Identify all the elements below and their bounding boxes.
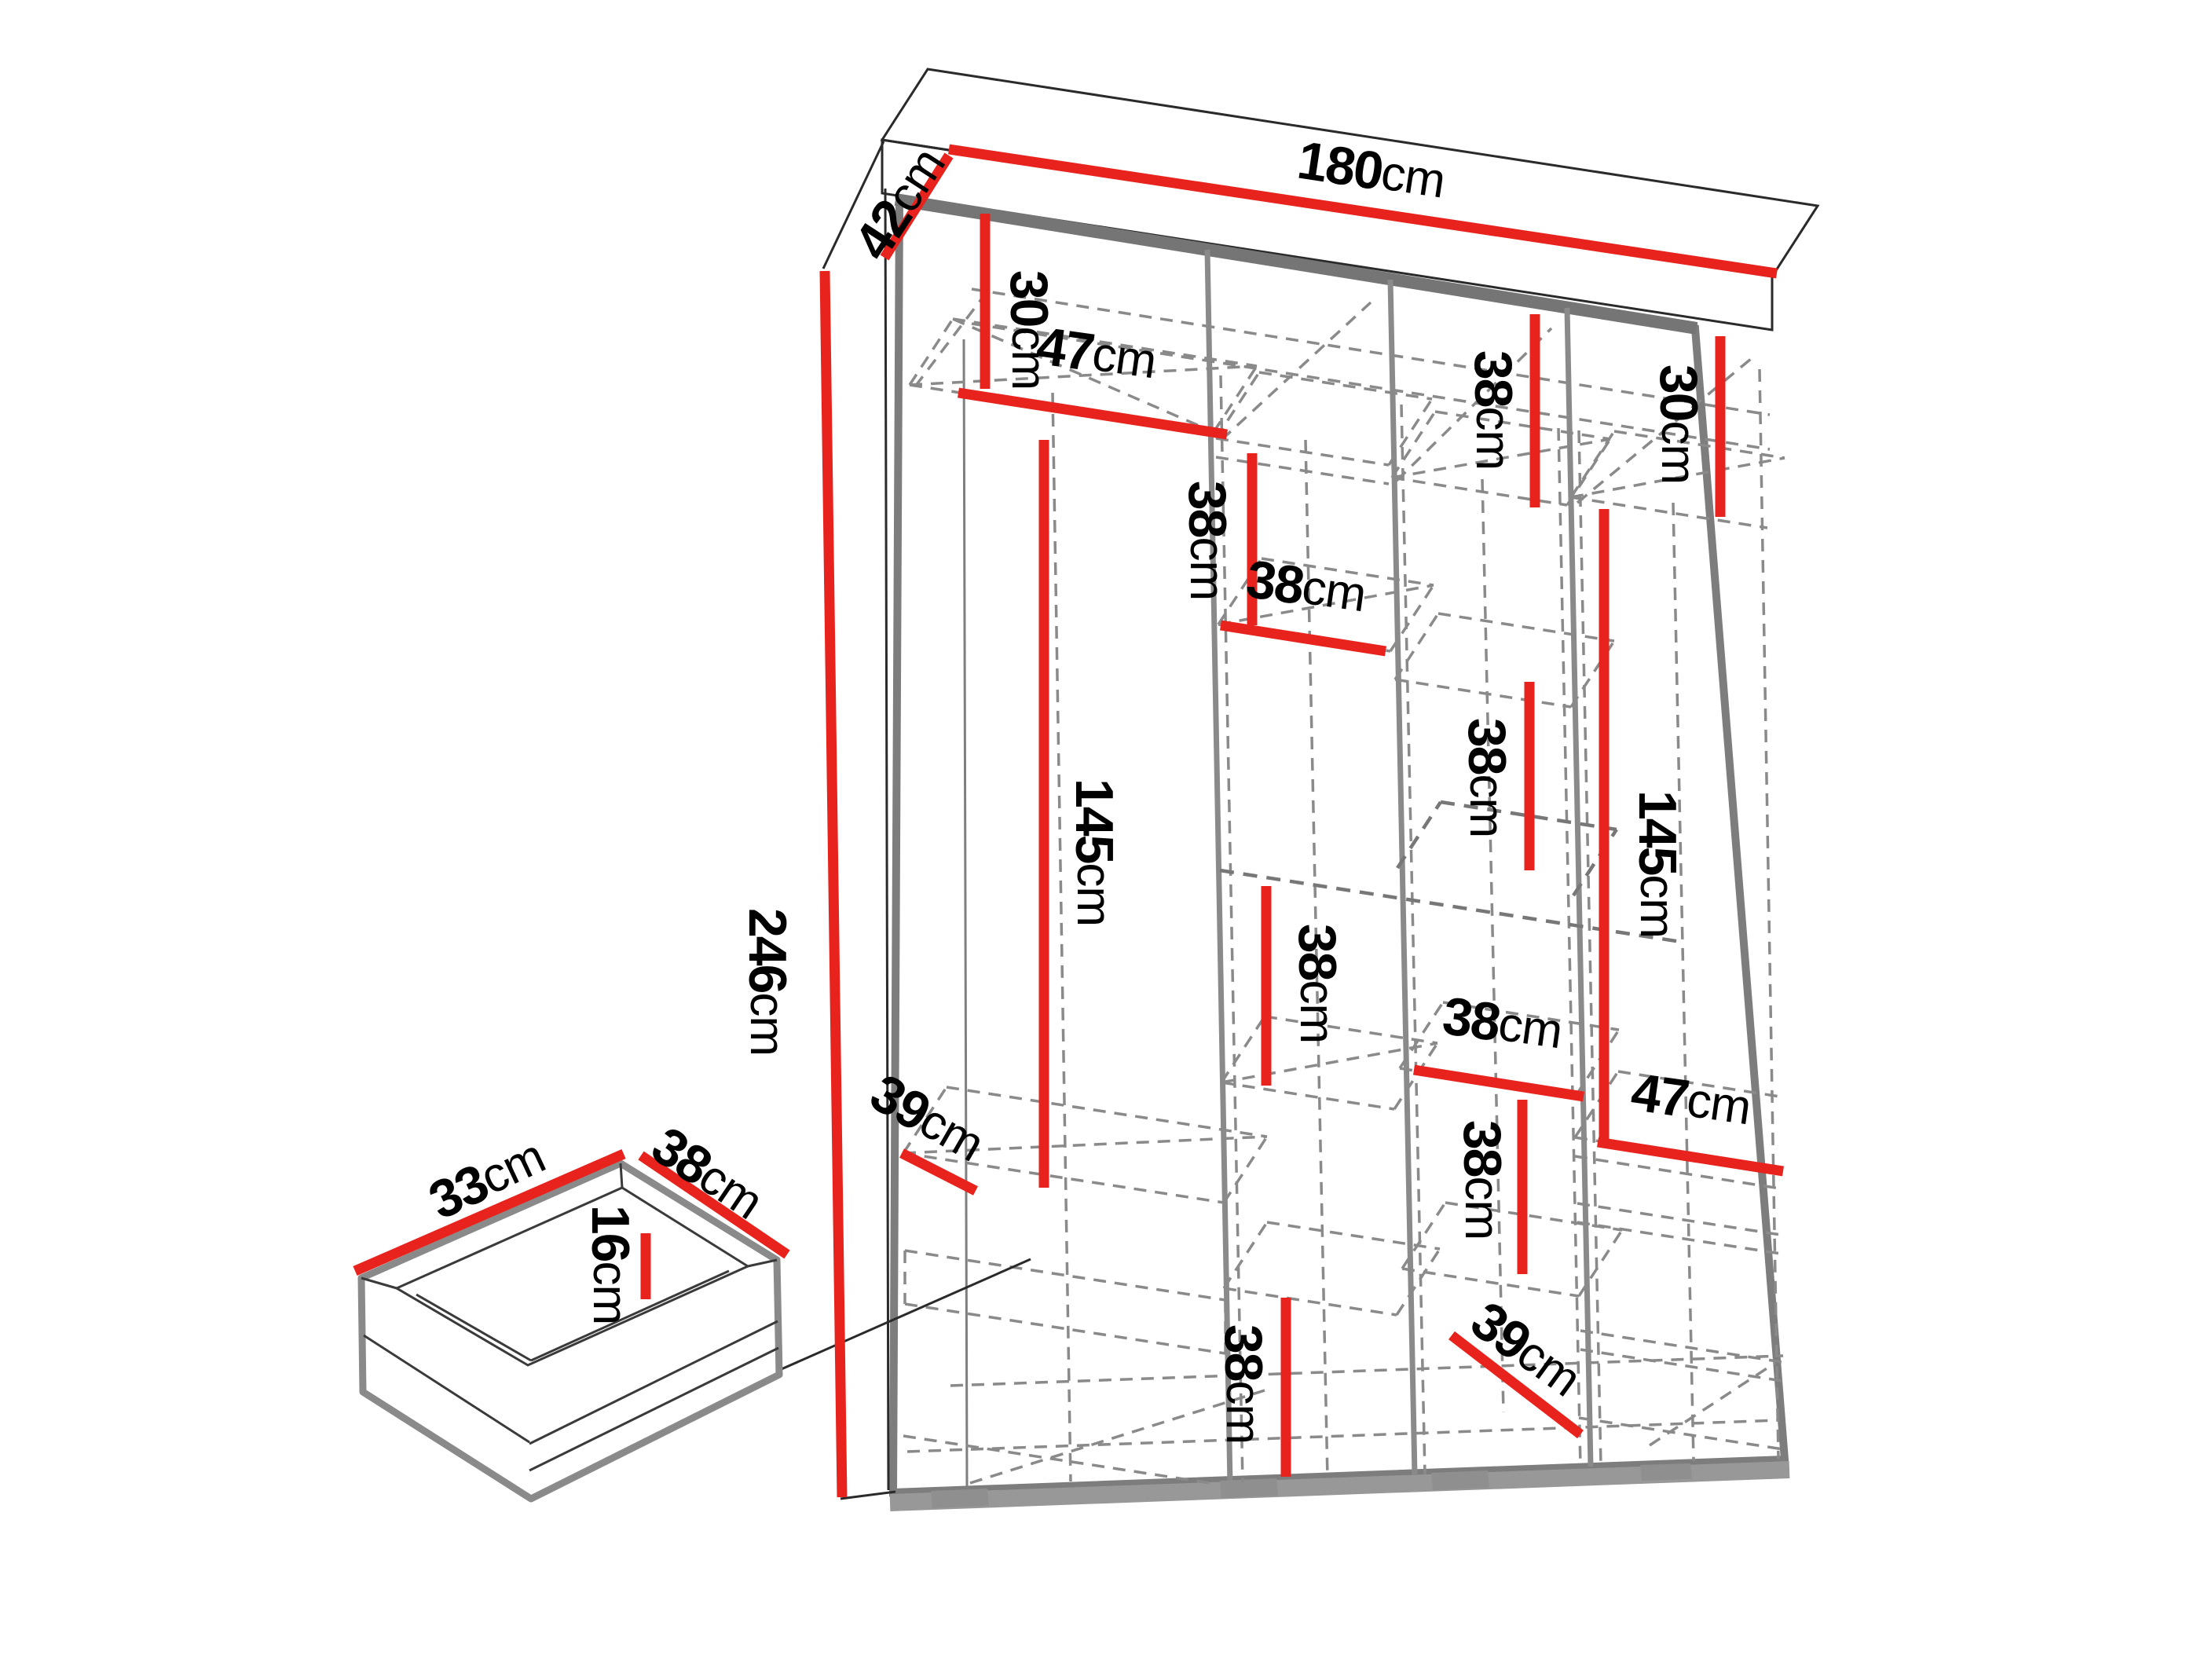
dim-label-col3-38a: 38cm: [1463, 350, 1523, 470]
dim-label-width-180: 180cm: [1294, 130, 1448, 211]
dim-label-col2-38d: 38cm: [1214, 1324, 1273, 1444]
left-panel-edge: [885, 189, 888, 1490]
foot: [931, 1489, 989, 1508]
witness-line-bottom: [840, 1492, 895, 1499]
foot: [1220, 1478, 1278, 1498]
foot: [1640, 1463, 1692, 1481]
dim-label-col4-30: 30cm: [1649, 364, 1708, 484]
dim-label-col3-38b: 38cm: [1457, 718, 1517, 837]
diagram-canvas: 180cm 42cm 246cm 30cm 47cm 145cm 39cm 38…: [0, 0, 2212, 1659]
dim-label-col2-38c: 38cm: [1287, 924, 1347, 1043]
dim-label-drawer-16: 16cm: [580, 1205, 640, 1324]
dim-line-height-246: [825, 271, 842, 1497]
foot: [1431, 1470, 1489, 1490]
dim-label-col2-38a: 38cm: [1177, 481, 1237, 600]
dim-label-col1-145: 145cm: [1064, 778, 1124, 926]
wardrobe-dimension-drawing: 180cm 42cm 246cm 30cm 47cm 145cm 39cm 38…: [0, 0, 2212, 1659]
drawer-body: [361, 1163, 779, 1499]
dim-label-col4-145: 145cm: [1628, 790, 1687, 938]
dim-label-col3-38d: 38cm: [1452, 1120, 1512, 1240]
dim-label-height-246: 246cm: [738, 908, 797, 1056]
